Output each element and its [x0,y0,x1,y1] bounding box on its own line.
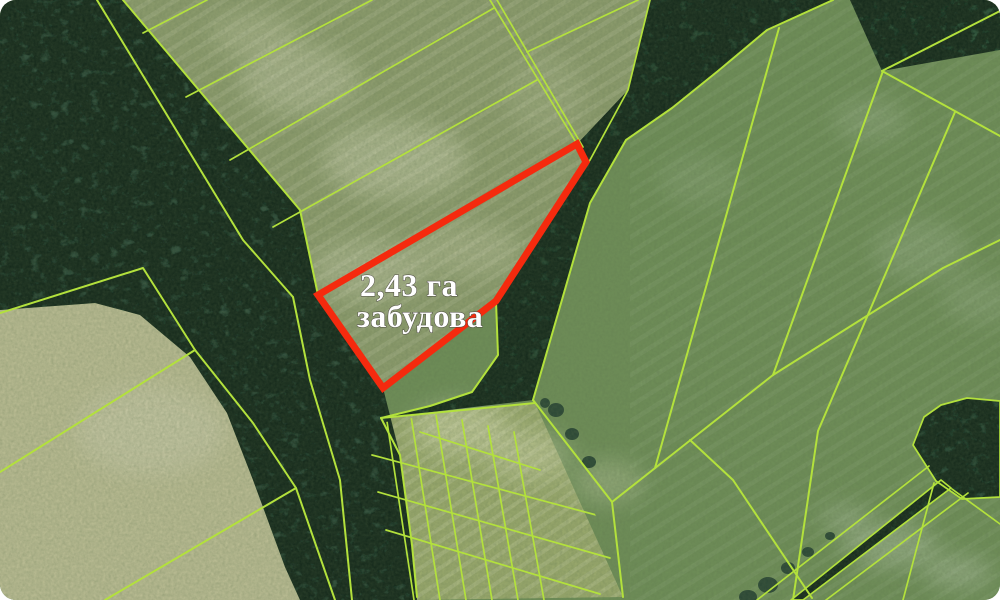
map-canvas[interactable]: 2,43 га забудова [0,0,1000,600]
parcel-landuse-text: забудова [357,298,483,334]
satellite-map: 2,43 га забудова [0,0,1000,600]
